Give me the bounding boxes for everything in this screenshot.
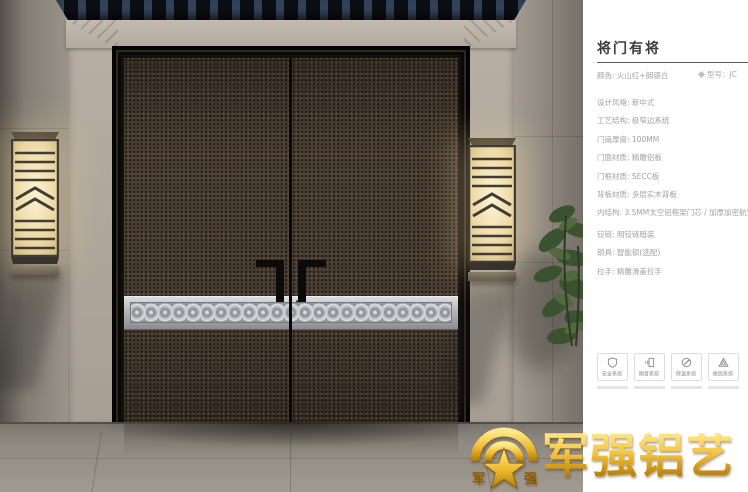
model-badge-icon — [698, 71, 705, 78]
feature-label: 安全系统 — [602, 369, 622, 377]
door-handle-right — [298, 260, 306, 302]
door-leaf-left — [124, 58, 290, 422]
brand-name: 军强铝艺 — [542, 433, 734, 480]
spec-item: 锁具: 智能锁(选配) — [597, 244, 748, 262]
lantern-cap — [11, 132, 59, 139]
door-seam — [289, 58, 292, 422]
spec-item: 背板材质: 多层实木背板 — [597, 186, 748, 204]
feature-caption — [671, 386, 702, 389]
door-shadow — [100, 422, 482, 448]
spec-item: 门框材质: SECC板 — [597, 168, 748, 186]
emblem-char-right: 强 — [524, 472, 537, 487]
feature-stability: 稳固系统 — [708, 353, 739, 389]
potted-plant — [492, 196, 583, 352]
feature-insulation: 保温系统 — [671, 353, 702, 389]
feature-caption — [634, 386, 665, 389]
model-text: 型号：JC — [707, 69, 737, 80]
tile-joint — [0, 128, 68, 129]
stone-lintel — [66, 18, 516, 48]
insulation-icon — [681, 357, 692, 368]
lantern-bracket — [11, 266, 59, 275]
lantern-body — [11, 139, 59, 257]
soundproof-icon — [644, 357, 655, 368]
stability-icon — [718, 357, 729, 368]
emblem-char-left: 军 — [472, 472, 485, 487]
spec-item: 内结构: 3.5MM太空铝框架门芯 / 加厚加密航空铝蜂窝芯 — [597, 204, 748, 222]
door-leaf-right — [292, 58, 458, 422]
entrance-render — [0, 0, 583, 492]
spec-list: 设计风格: 新中式 工艺结构: 极窄边系统 门扇厚度: 100MM 门面材质: … — [597, 94, 748, 281]
feature-safety: 安全系统 — [597, 353, 628, 389]
brand-logo: 军 强 军强铝艺 — [466, 420, 748, 492]
product-poster: 将门有将 颜色: 火山红+朗银白 型号：JC 设计风格: 新中式 工艺结构: 极… — [0, 0, 748, 492]
feature-caption — [597, 386, 628, 389]
spec-item: 铰链: 明铰链暗装 — [597, 226, 748, 244]
spec-item: 设计风格: 新中式 — [597, 94, 748, 112]
title-divider — [597, 62, 748, 63]
brand-emblem-icon: 军 强 — [466, 421, 542, 491]
door-handle-left — [276, 260, 284, 302]
spec-item: 门扇厚度: 100MM — [597, 131, 748, 149]
plant-foliage-icon — [492, 196, 583, 352]
color-label: 颜色: 火山红+朗银白 — [597, 70, 668, 81]
wall-lantern-left — [11, 132, 59, 275]
feature-badges: 安全系统 隔音系统 — [597, 353, 739, 389]
feature-caption — [708, 386, 739, 389]
spec-item: 门面材质: 精雕铝板 — [597, 149, 748, 167]
product-title: 将门有将 — [597, 38, 661, 58]
spec-item: 拉手: 精雕滑盖拉手 — [597, 263, 748, 281]
lantern-cap — [11, 257, 59, 264]
feature-label: 隔音系统 — [639, 369, 659, 377]
lantern-lattice-icon — [11, 139, 59, 257]
shield-icon — [607, 357, 618, 368]
spec-item: 工艺结构: 极窄边系统 — [597, 112, 748, 130]
tile-joint — [514, 136, 583, 137]
roof-eave-rafters — [56, 0, 526, 20]
feature-soundproof: 隔音系统 — [634, 353, 665, 389]
feature-label: 保温系统 — [676, 369, 696, 377]
lantern-cap — [468, 138, 516, 145]
model-label: 型号：JC — [699, 69, 737, 80]
spec-panel: 将门有将 颜色: 火山红+朗银白 型号：JC 设计风格: 新中式 工艺结构: 极… — [583, 0, 748, 492]
feature-label: 稳固系统 — [713, 369, 733, 377]
